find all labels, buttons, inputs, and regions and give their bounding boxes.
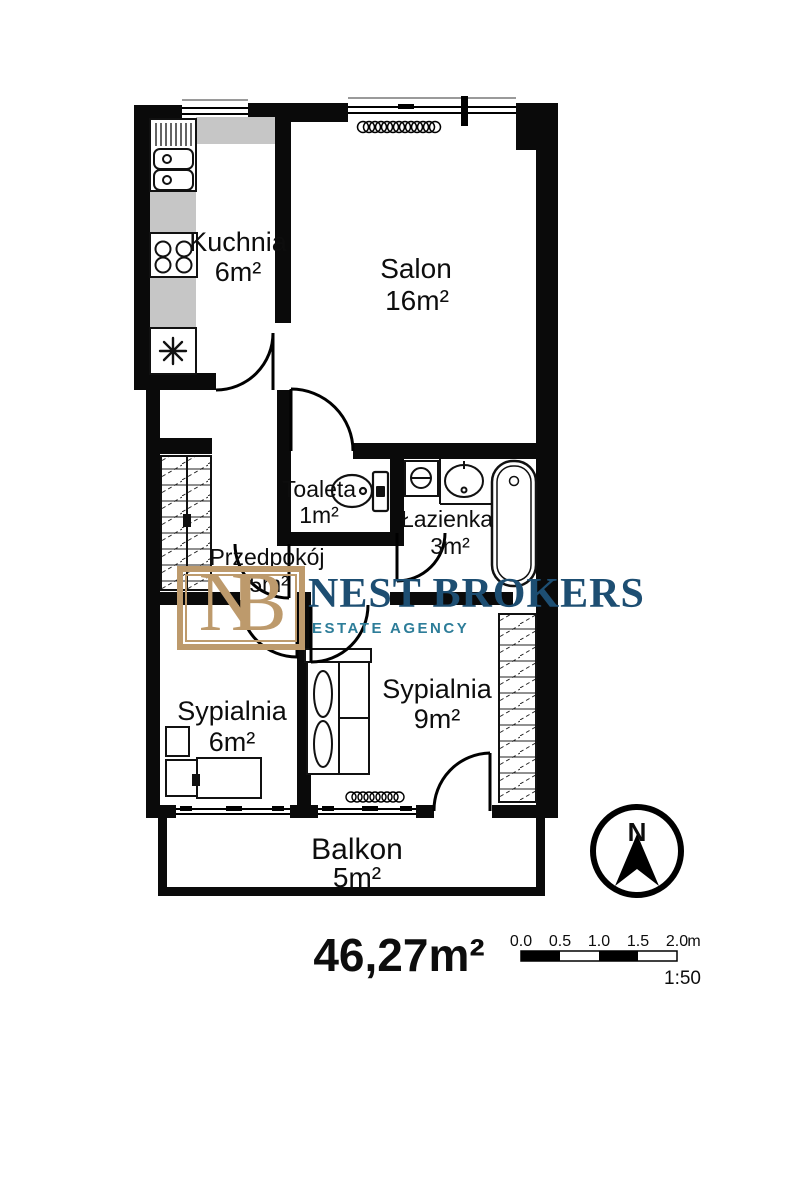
svg-text:16m²: 16m² xyxy=(385,285,449,316)
svg-text:Łazienka: Łazienka xyxy=(401,506,493,532)
svg-text:6m²: 6m² xyxy=(209,727,256,757)
bedroom-large-wardrobe xyxy=(499,614,536,802)
room-label-salon: Salon 16m² xyxy=(380,253,452,316)
bedroom-large-window xyxy=(318,805,416,818)
bathtub xyxy=(492,461,536,586)
scale-tick-0: 0.0 xyxy=(510,933,532,950)
svg-text:Toaleta: Toaleta xyxy=(282,476,356,502)
svg-text:Salon: Salon xyxy=(380,253,452,284)
room-label-kuchnia: Kuchnia 6m² xyxy=(189,227,288,287)
svg-text:Kuchnia: Kuchnia xyxy=(189,227,288,257)
scale-tick-4: 2.0 xyxy=(666,933,688,950)
scale-ratio: 1:50 xyxy=(664,968,701,989)
room-label-przedpokoj: Przedpokój 5m² xyxy=(209,544,324,597)
snowflake-icon xyxy=(160,338,186,364)
svg-text:9m²: 9m² xyxy=(414,704,461,734)
svg-text:5m²: 5m² xyxy=(333,862,381,893)
hallway-wardrobe xyxy=(161,456,211,590)
room-label-sypialnia-mala: Sypialnia 6m² xyxy=(177,696,288,757)
total-area-label: 46,27m² xyxy=(313,929,484,981)
room-label-sypialnia-duza: Sypialnia 9m² xyxy=(382,674,493,734)
kitchen-door-arc xyxy=(216,333,273,390)
svg-text:5m²: 5m² xyxy=(249,571,289,597)
room-label-balkon: Balkon 5m² xyxy=(311,833,403,893)
bedroom-radiator xyxy=(346,792,404,802)
bathroom-sink xyxy=(440,459,492,504)
floor-plan-drawing: Kuchnia 6m² Salon 16m² Toaleta 1m² Łazie… xyxy=(0,0,800,1200)
washing-machine xyxy=(405,461,438,496)
svg-text:Sypialnia: Sypialnia xyxy=(382,674,493,704)
kitchen-fridge xyxy=(150,328,196,374)
kitchen-sink xyxy=(150,119,196,191)
scale-bar: 0.0 0.5 1.0 1.5 2.0 m 1:50 xyxy=(510,933,701,989)
scale-tick-3: 1.5 xyxy=(627,933,649,950)
north-arrow-icon xyxy=(615,834,659,886)
bedroom-small-door-arc xyxy=(240,600,297,657)
double-bed xyxy=(305,649,371,774)
balcony-door-arc xyxy=(434,753,490,811)
nightstand xyxy=(166,727,189,756)
svg-text:1m²: 1m² xyxy=(299,502,339,528)
scale-unit: m xyxy=(687,933,700,950)
svg-text:Przedpokój: Przedpokój xyxy=(209,544,324,570)
floor-plan-page: Kuchnia 6m² Salon 16m² Toaleta 1m² Łazie… xyxy=(0,0,800,1200)
bedroom-small-window xyxy=(176,805,290,818)
north-compass: N xyxy=(593,807,681,895)
svg-text:6m²: 6m² xyxy=(215,257,262,287)
salon-door-arc xyxy=(291,389,353,451)
svg-text:Sypialnia: Sypialnia xyxy=(177,696,288,726)
scale-tick-1: 0.5 xyxy=(549,933,571,950)
scale-tick-2: 1.0 xyxy=(588,933,610,950)
svg-text:3m²: 3m² xyxy=(430,533,470,559)
room-label-lazienka: Łazienka 3m² xyxy=(401,506,493,559)
salon-radiator xyxy=(358,122,441,133)
